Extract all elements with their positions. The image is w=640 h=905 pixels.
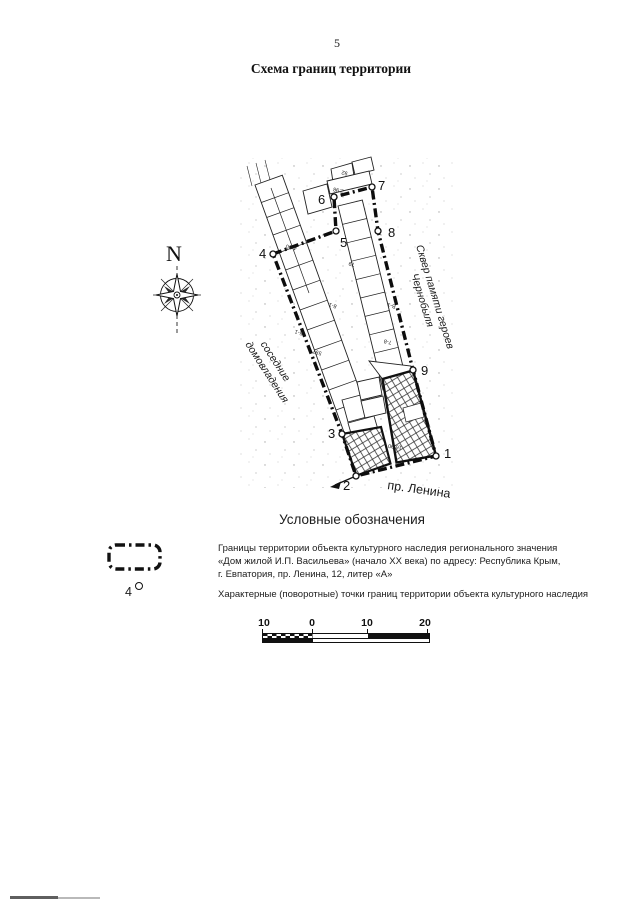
point-legend-symbol: 4 [125,585,140,599]
scale-label-0: 0 [309,617,315,629]
point-legend-number: 4 [125,585,132,599]
territory-boundary-map: N [0,0,640,905]
scan-artifact [58,897,100,899]
scale-label-10-left: 10 [258,617,270,629]
point-label-5: 5 [340,235,347,250]
point-label-4: 4 [259,246,266,261]
scale-bar-graphic [262,633,430,643]
scale-label-20: 20 [419,617,431,629]
point-label-6: 6 [318,192,325,207]
scan-artifact [10,896,58,899]
point-label-7: 7 [378,178,385,193]
boundary-legend-line1: Границы территории объекта культурного н… [218,542,560,555]
document-page: 5 Схема границ территории [0,0,640,905]
legend-title: Условные обозначения [279,512,425,527]
point-label-1: 1 [444,446,451,461]
compass-north-label: N [166,241,182,266]
boundary-legend-line2: «Дом жилой И.П. Васильева» (начало XX ве… [218,555,560,568]
point-label-2: 2 [343,478,350,493]
point-label-9: 9 [421,363,428,378]
boundary-legend-symbol [105,541,165,573]
point-legend-text: Характерные (поворотные) точки границ те… [218,589,588,600]
scale-bar: 10 0 10 20 [262,617,434,649]
point-circle-icon [135,582,143,590]
point-label-3: 3 [328,426,335,441]
point-label-8: 8 [388,225,395,240]
boundary-legend-text: Границы территории объекта культурного н… [218,542,560,582]
scale-label-10-right: 10 [361,617,373,629]
boundary-legend-line3: г. Евпатория, пр. Ленина, 12, литер «А» [218,568,560,581]
compass-rose: N [153,241,201,334]
annotation: 79 [348,260,355,267]
